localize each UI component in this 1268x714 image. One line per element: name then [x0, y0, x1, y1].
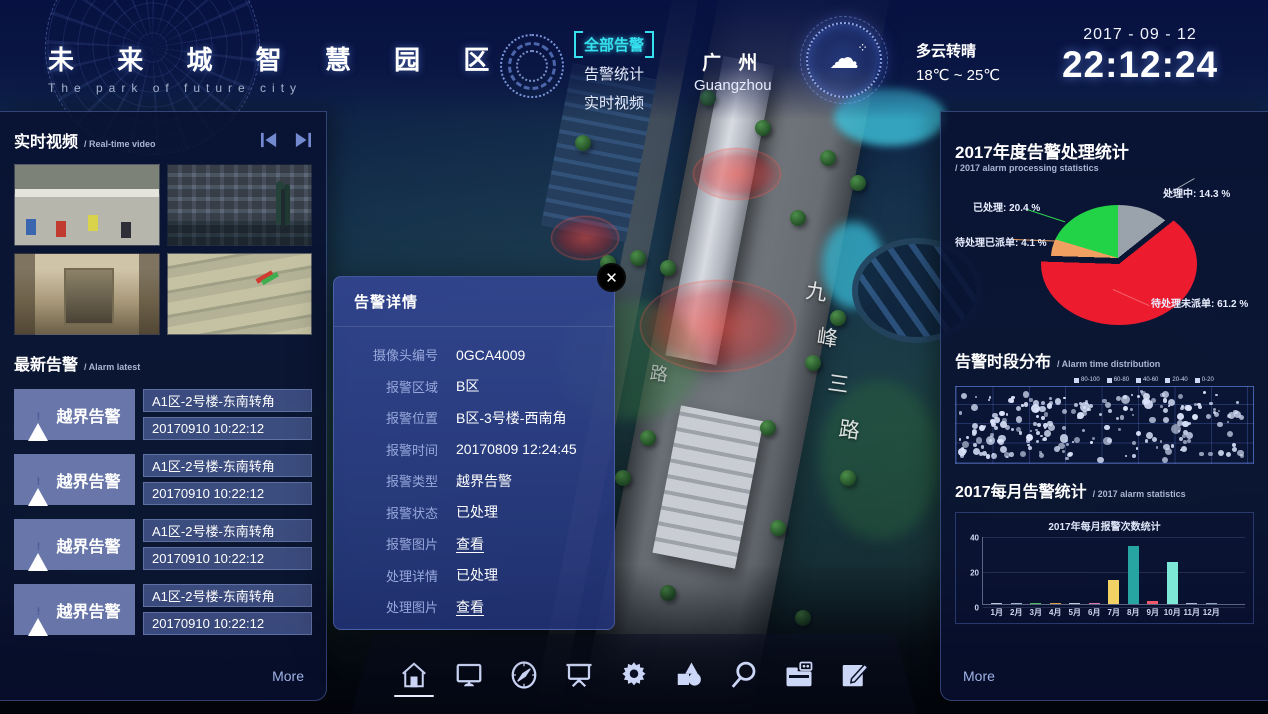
scatter-point [1037, 423, 1041, 427]
scatter-point [961, 393, 967, 399]
bar-7月[interactable] [1108, 580, 1119, 605]
alarm-list-item[interactable]: !越界告警A1区-2号楼-东南转角20170910 10:22:12 [14, 454, 312, 505]
field-label: 报警区域 [334, 377, 438, 396]
map-tree [615, 470, 631, 486]
scatter-point [1163, 408, 1168, 413]
map-road-label: 路 [648, 359, 669, 387]
scatter-point [1083, 406, 1086, 409]
top-header: 未 来 城 智 慧 园 区 The park of future city 全部… [0, 0, 1268, 112]
pie-label-dispatched: 待处理已派单: 4.1 % [955, 234, 1047, 249]
card-reader-icon[interactable] [782, 653, 816, 697]
map-tree [755, 120, 771, 136]
map-tree [630, 250, 646, 266]
alarm-list-item[interactable]: !越界告警A1区-2号楼-东南转角20170910 10:22:12 [14, 584, 312, 635]
scatter-point [1121, 395, 1130, 404]
bar-4月[interactable] [1050, 603, 1061, 604]
scatter-point [1177, 420, 1183, 426]
city-selector[interactable]: 广 州 Guangzhou [694, 48, 772, 94]
scatter-point [1136, 431, 1141, 436]
scatter-point [1163, 417, 1169, 423]
scatter-point [988, 399, 991, 402]
field-value-link[interactable]: 查看 [456, 534, 484, 554]
alarm-detail-modal: ✕ 告警详情 摄像头编号0GCA4009报警区域B区报警位置B区-3号楼-西南角… [333, 276, 615, 630]
scatter-legend-item: 60-80 [1107, 377, 1129, 383]
field-label: 报警时间 [334, 440, 438, 459]
scatter-point [1131, 394, 1133, 396]
scatter-point [1026, 434, 1033, 441]
scatter-point [1074, 437, 1080, 443]
scatter-point [972, 423, 978, 429]
app-title: 未 来 城 智 慧 园 区 [48, 40, 507, 77]
bar-ytick: 40 [970, 534, 979, 543]
alarm-time: 20170910 10:22:12 [143, 612, 312, 635]
scatter-point [1160, 393, 1165, 398]
field-label: 报警图片 [334, 534, 438, 553]
field-label: 摄像头编号 [334, 345, 438, 364]
bar-category-label: 11月 [1184, 607, 1200, 618]
scatter-point [1181, 446, 1187, 452]
clock-display: 22:12:24 [1040, 44, 1240, 86]
field-label: 报警状态 [334, 503, 438, 522]
modal-field-row: 报警区域B区 [334, 371, 614, 403]
scatter-point [973, 443, 977, 447]
app-subtitle: The park of future city [48, 81, 507, 95]
bar-8月[interactable] [1128, 546, 1139, 604]
stats-more-link[interactable]: More [963, 668, 995, 684]
bar-section-title: 2017每月告警统计 [955, 478, 1087, 502]
city-name-en: Guangzhou [694, 77, 772, 94]
monthly-alarm-bar-chart[interactable]: 2017年每月报警次数统计 020401月2月3月4月5月6月7月8月9月10月… [955, 512, 1254, 624]
scatter-point [1016, 406, 1021, 411]
scatter-point [1118, 428, 1121, 431]
scatter-point [1066, 443, 1069, 446]
scatter-point [973, 448, 980, 455]
scatter-point [1192, 414, 1198, 420]
monitor-icon[interactable] [452, 653, 486, 697]
scatter-point [1036, 440, 1039, 443]
scatter-point [1108, 409, 1112, 413]
bar-11月[interactable] [1186, 603, 1197, 604]
scatter-point [1044, 412, 1048, 416]
scatter-point [1185, 405, 1191, 411]
scatter-point [1146, 432, 1153, 439]
video-thumbnail-street[interactable] [14, 164, 160, 246]
scatter-point [1209, 402, 1213, 406]
scatter-section-subtitle: / Alarm time distribution [1057, 359, 1160, 369]
scatter-legend-item: 40-60 [1136, 377, 1158, 383]
map-alarm-zone[interactable] [693, 148, 781, 200]
datetime-widget: 2017 - 09 - 12 22:12:24 [1040, 26, 1240, 86]
field-value: B区-3号楼-西南角 [456, 408, 566, 428]
modal-field-list: 摄像头编号0GCA4009报警区域B区报警位置B区-3号楼-西南角报警时间201… [334, 327, 614, 623]
map-road-label: 路 [837, 413, 862, 446]
scatter-point [976, 437, 983, 444]
bar-3月[interactable] [1030, 603, 1041, 604]
shapes-icon[interactable] [672, 653, 706, 697]
scatter-point [1160, 440, 1162, 442]
modal-field-row: 报警类型越界告警 [334, 465, 614, 497]
scatter-point [1136, 447, 1139, 450]
bar-category-label: 10月 [1164, 607, 1181, 618]
alarm-location: A1区-2号楼-东南转角 [143, 389, 312, 412]
warning-icon: ! [28, 406, 48, 424]
scatter-point [1042, 438, 1045, 441]
bottom-toolbar [351, 634, 917, 714]
bar-10月[interactable] [1167, 562, 1178, 604]
video-thumbnail-grid [14, 164, 312, 335]
scatter-legend-item: 80-100 [1074, 377, 1100, 383]
field-label: 报警类型 [334, 471, 438, 490]
alarm-type-label: 越界告警 [56, 403, 120, 427]
scatter-point [1040, 435, 1043, 438]
scatter-point [1099, 413, 1102, 416]
bar-5月[interactable] [1069, 603, 1080, 604]
scatter-point [1062, 409, 1067, 414]
map-alarm-zone[interactable] [551, 216, 619, 260]
field-value: 20170809 12:24:45 [456, 441, 577, 457]
scatter-point [1217, 422, 1223, 428]
scatter-point [991, 422, 996, 427]
video-section-title: 实时视频 [14, 128, 78, 152]
scatter-point [1105, 402, 1111, 408]
scatter-point [1162, 457, 1168, 463]
modal-field-row: 处理详情已处理 [334, 560, 614, 592]
video-section-header: 实时视频 / Real-time video [14, 128, 156, 152]
field-value: B区 [456, 376, 479, 396]
scatter-point [1020, 451, 1027, 458]
scatter-point [1036, 415, 1039, 418]
app-logo: 未 来 城 智 慧 园 区 The park of future city [48, 40, 507, 95]
scatter-point [1180, 407, 1183, 410]
city-name-cn: 广 州 [694, 48, 772, 75]
scatter-point [1005, 425, 1010, 430]
scatter-point [1194, 403, 1197, 406]
bar-2月[interactable] [1011, 603, 1022, 604]
scatter-point [971, 404, 978, 411]
map-tree [760, 420, 776, 436]
warning-icon: ! [28, 471, 48, 489]
scatter-point [989, 396, 991, 398]
bar-1月[interactable] [991, 603, 1002, 604]
scatter-point [979, 425, 985, 431]
scatter-point [1029, 398, 1033, 402]
pie-section-header: 2017年度告警处理统计 [955, 138, 1254, 163]
scatter-point [959, 438, 961, 440]
map-tree [805, 355, 821, 371]
scatter-point [1039, 451, 1041, 453]
scatter-point [1044, 430, 1051, 437]
bar-ytick: 20 [970, 569, 979, 578]
scatter-point [1125, 455, 1127, 457]
home-icon[interactable] [397, 653, 431, 697]
bar-category-label: 9月 [1147, 607, 1159, 618]
scatter-point [1226, 452, 1232, 458]
radar-ring-icon [500, 34, 564, 98]
scatter-point [1002, 418, 1007, 423]
scatter-point [1208, 452, 1212, 456]
close-icon[interactable]: ✕ [597, 263, 626, 292]
scatter-point [1239, 415, 1244, 420]
map-alarm-zone[interactable] [640, 280, 796, 372]
pie-section-subtitle: / 2017 alarm processing statistics [955, 163, 1254, 173]
weather-condition: 多云转晴 [916, 40, 1000, 61]
main-nav: 全部告警告警统计实时视频 [576, 33, 652, 114]
video-thumbnail-lobby[interactable] [14, 253, 160, 335]
scatter-point [1063, 397, 1065, 399]
skip-next-icon[interactable] [294, 132, 312, 148]
scatter-point [1024, 402, 1028, 406]
scatter-section-header: 告警时段分布 / Alarm time distribution [955, 348, 1254, 372]
scatter-point [1132, 414, 1135, 417]
video-thumbnail-building[interactable] [167, 164, 313, 246]
scatter-point [1016, 416, 1022, 422]
map-tree [660, 260, 676, 276]
scatter-point [1116, 396, 1121, 401]
skip-previous-icon[interactable] [260, 132, 278, 148]
scatter-point [1236, 401, 1239, 404]
scatter-point [1240, 454, 1244, 458]
right-panel: 2017年度告警处理统计 / 2017 alarm processing sta… [940, 111, 1268, 701]
map-road-label: 三 [826, 367, 851, 400]
scatter-point [1036, 431, 1040, 435]
scatter-section-title: 告警时段分布 [955, 348, 1051, 372]
scatter-point [1123, 406, 1128, 411]
scatter-point [1203, 391, 1206, 394]
scatter-point [1187, 439, 1191, 443]
scatter-point [1199, 452, 1204, 457]
scatter-point [1116, 417, 1119, 420]
scatter-point [1055, 398, 1061, 404]
scatter-point [1160, 405, 1163, 408]
modal-field-row: 报警位置B区-3号楼-西南角 [334, 402, 614, 434]
sun-rays-icon: ⁘ [857, 40, 868, 56]
scatter-legend-item: 0-20 [1195, 377, 1214, 383]
alarm-location: A1区-2号楼-东南转角 [143, 584, 312, 607]
alarm-more-link[interactable]: More [272, 668, 304, 684]
scatter-point [1227, 431, 1233, 437]
alarm-type-label: 越界告警 [56, 598, 120, 622]
scatter-point [975, 396, 977, 398]
scatter-point [962, 449, 967, 454]
field-value: 0GCA4009 [456, 347, 525, 363]
alarm-type-badge: !越界告警 [14, 389, 135, 440]
alarm-section-subtitle: / Alarm latest [84, 362, 140, 372]
scatter-point [1145, 439, 1148, 442]
modal-title: 告警详情 [334, 277, 614, 327]
scatter-point [1233, 410, 1238, 415]
map-tree [790, 210, 806, 226]
nav-item[interactable]: 全部告警 [576, 33, 652, 56]
field-value: 已处理 [456, 502, 498, 522]
alarm-time-scatter-chart[interactable]: 80-10060-8040-6020-400-20 [955, 386, 1254, 464]
scatter-point [1156, 446, 1159, 449]
bar-category-label: 6月 [1088, 607, 1100, 618]
map-greenery [820, 380, 940, 540]
bar-section-subtitle: / 2017 alarm statistics [1093, 489, 1186, 499]
modal-field-row: 报警状态已处理 [334, 497, 614, 529]
alarm-time: 20170910 10:22:12 [143, 417, 312, 440]
alarm-type-badge: !越界告警 [14, 519, 135, 570]
alarm-type-badge: !越界告警 [14, 584, 135, 635]
scatter-point [1130, 408, 1133, 411]
scatter-point [1183, 430, 1188, 435]
bar-category-label: 5月 [1069, 607, 1081, 618]
alarm-processing-pie-chart: 已处理: 20.4 % 处理中: 14.3 % 待处理已派单: 4.1 % 待处… [955, 177, 1254, 342]
scatter-point [1060, 434, 1068, 442]
scatter-legend: 80-10060-8040-6020-400-20 [1074, 377, 1214, 383]
scatter-point [959, 411, 963, 415]
video-thumbnail-stairs[interactable] [167, 253, 313, 335]
scatter-point [998, 435, 1006, 443]
modal-field-row: 处理图片查看 [334, 591, 614, 623]
field-value: 越界告警 [456, 471, 512, 491]
bar-6月[interactable] [1089, 603, 1100, 604]
modal-field-row: 报警时间20170809 12:24:45 [334, 434, 614, 466]
scatter-point [1041, 401, 1045, 405]
bar-category-label: 1月 [991, 607, 1003, 618]
scatter-point [1047, 403, 1053, 409]
projection-screen-icon[interactable] [562, 653, 596, 697]
warning-icon: ! [28, 536, 48, 554]
field-label: 处理图片 [334, 597, 438, 616]
scatter-point [1198, 405, 1202, 409]
map-tree [770, 520, 786, 536]
nav-item[interactable]: 实时视频 [576, 91, 652, 114]
scatter-point [1215, 394, 1218, 397]
scatter-point [1071, 409, 1076, 414]
scatter-point [1058, 443, 1065, 450]
scatter-point [1178, 394, 1183, 399]
weather-info: 多云转晴 18℃ ~ 25℃ [916, 40, 1000, 84]
scatter-point [966, 436, 969, 439]
scatter-point [1183, 440, 1187, 444]
scatter-point [1031, 404, 1040, 413]
bar-ytick: 0 [975, 604, 979, 613]
bar-category-label: 7月 [1108, 607, 1120, 618]
alarm-location: A1区-2号楼-东南转角 [143, 519, 312, 542]
warning-icon: ! [28, 601, 48, 619]
map-tree [850, 175, 866, 191]
scatter-point [1089, 404, 1093, 408]
scatter-point [1218, 450, 1225, 457]
alarm-list-item[interactable]: !越界告警A1区-2号楼-东南转角20170910 10:22:12 [14, 389, 312, 440]
modal-field-row: 摄像头编号0GCA4009 [334, 339, 614, 371]
pie-label-done: 已处理: 20.4 % [973, 199, 1040, 214]
scatter-point [1092, 437, 1095, 440]
nav-item[interactable]: 告警统计 [576, 62, 652, 85]
gear-icon[interactable] [617, 653, 651, 697]
alarm-type-badge: !越界告警 [14, 454, 135, 505]
map-tree [640, 430, 656, 446]
date-display: 2017 - 09 - 12 [1040, 26, 1240, 44]
alarm-section-title: 最新告警 [14, 351, 78, 375]
scatter-point [1227, 421, 1229, 423]
scatter-point [1006, 413, 1009, 416]
scatter-point [1188, 422, 1191, 425]
scatter-point [1023, 391, 1029, 397]
field-label: 报警位置 [334, 408, 438, 427]
dashboard: 九峰三路 路 未 来 城 智 慧 园 区 The park of future … [0, 0, 1268, 714]
alarm-type-label: 越界告警 [56, 533, 120, 557]
field-value: 已处理 [456, 565, 498, 585]
scatter-point [972, 432, 976, 436]
bar-gridline [983, 572, 1245, 573]
scatter-point [1062, 450, 1065, 453]
pie-label-processing: 处理中: 14.3 % [1163, 185, 1230, 200]
bar-category-label: 2月 [1010, 607, 1022, 618]
scatter-point [1104, 425, 1110, 431]
alarm-section-header: 最新告警 / Alarm latest [14, 351, 312, 375]
scatter-point [992, 453, 994, 455]
alarm-list: !越界告警A1区-2号楼-东南转角20170910 10:22:12!越界告警A… [14, 389, 312, 635]
scatter-point [1028, 446, 1032, 450]
scatter-point [1097, 457, 1104, 464]
scatter-point [962, 441, 969, 448]
map-road-label: 九 [804, 275, 829, 308]
scatter-point [1011, 428, 1014, 431]
scatter-point [960, 454, 964, 458]
pie-label-undispatched: 待处理未派单: 61.2 % [1151, 295, 1248, 310]
scatter-point [1030, 430, 1032, 432]
scatter-point [981, 445, 985, 449]
scatter-point [1168, 399, 1175, 406]
scatter-point [1137, 395, 1141, 399]
bar-category-label: 4月 [1049, 607, 1061, 618]
scatter-point [1132, 441, 1137, 446]
scatter-point [1163, 398, 1168, 403]
scatter-point [999, 411, 1005, 417]
scatter-point [1062, 426, 1066, 430]
scatter-point [1149, 417, 1156, 424]
bar-12月[interactable] [1206, 603, 1217, 604]
left-panel: 实时视频 / Real-time video [0, 111, 327, 701]
compass-icon[interactable] [507, 653, 541, 697]
scatter-point [1177, 413, 1184, 420]
scatter-point [1077, 416, 1081, 420]
scatter-point [1049, 397, 1052, 400]
scatter-point [1120, 415, 1125, 420]
scatter-point [1165, 448, 1172, 455]
field-label: 处理详情 [334, 566, 438, 585]
field-value-link[interactable]: 查看 [456, 597, 484, 617]
scatter-point [1082, 411, 1087, 416]
scatter-legend-item: 20-40 [1165, 377, 1187, 383]
scatter-point [1132, 454, 1136, 458]
search-icon[interactable] [727, 653, 761, 697]
scatter-point [1171, 444, 1175, 448]
map-tree [575, 135, 591, 151]
modal-field-row: 报警图片查看 [334, 528, 614, 560]
edit-icon[interactable] [837, 653, 871, 697]
scatter-point [1074, 403, 1078, 407]
scatter-point [1082, 429, 1085, 432]
alarm-time: 20170910 10:22:12 [143, 482, 312, 505]
scatter-point [1021, 404, 1024, 407]
scatter-point [1006, 456, 1008, 458]
alarm-location: A1区-2号楼-东南转角 [143, 454, 312, 477]
bar-9月[interactable] [1147, 601, 1158, 605]
scatter-point [1065, 457, 1069, 461]
map-road-label: 峰 [815, 321, 840, 354]
scatter-point [1009, 452, 1014, 457]
scatter-point [1072, 441, 1074, 443]
map-tree [840, 470, 856, 486]
alarm-list-item[interactable]: !越界告警A1区-2号楼-东南转角20170910 10:22:12 [14, 519, 312, 570]
scatter-point [1068, 452, 1073, 457]
bar-category-label: 3月 [1030, 607, 1042, 618]
scatter-point [1090, 441, 1093, 444]
scatter-point [1206, 414, 1211, 419]
